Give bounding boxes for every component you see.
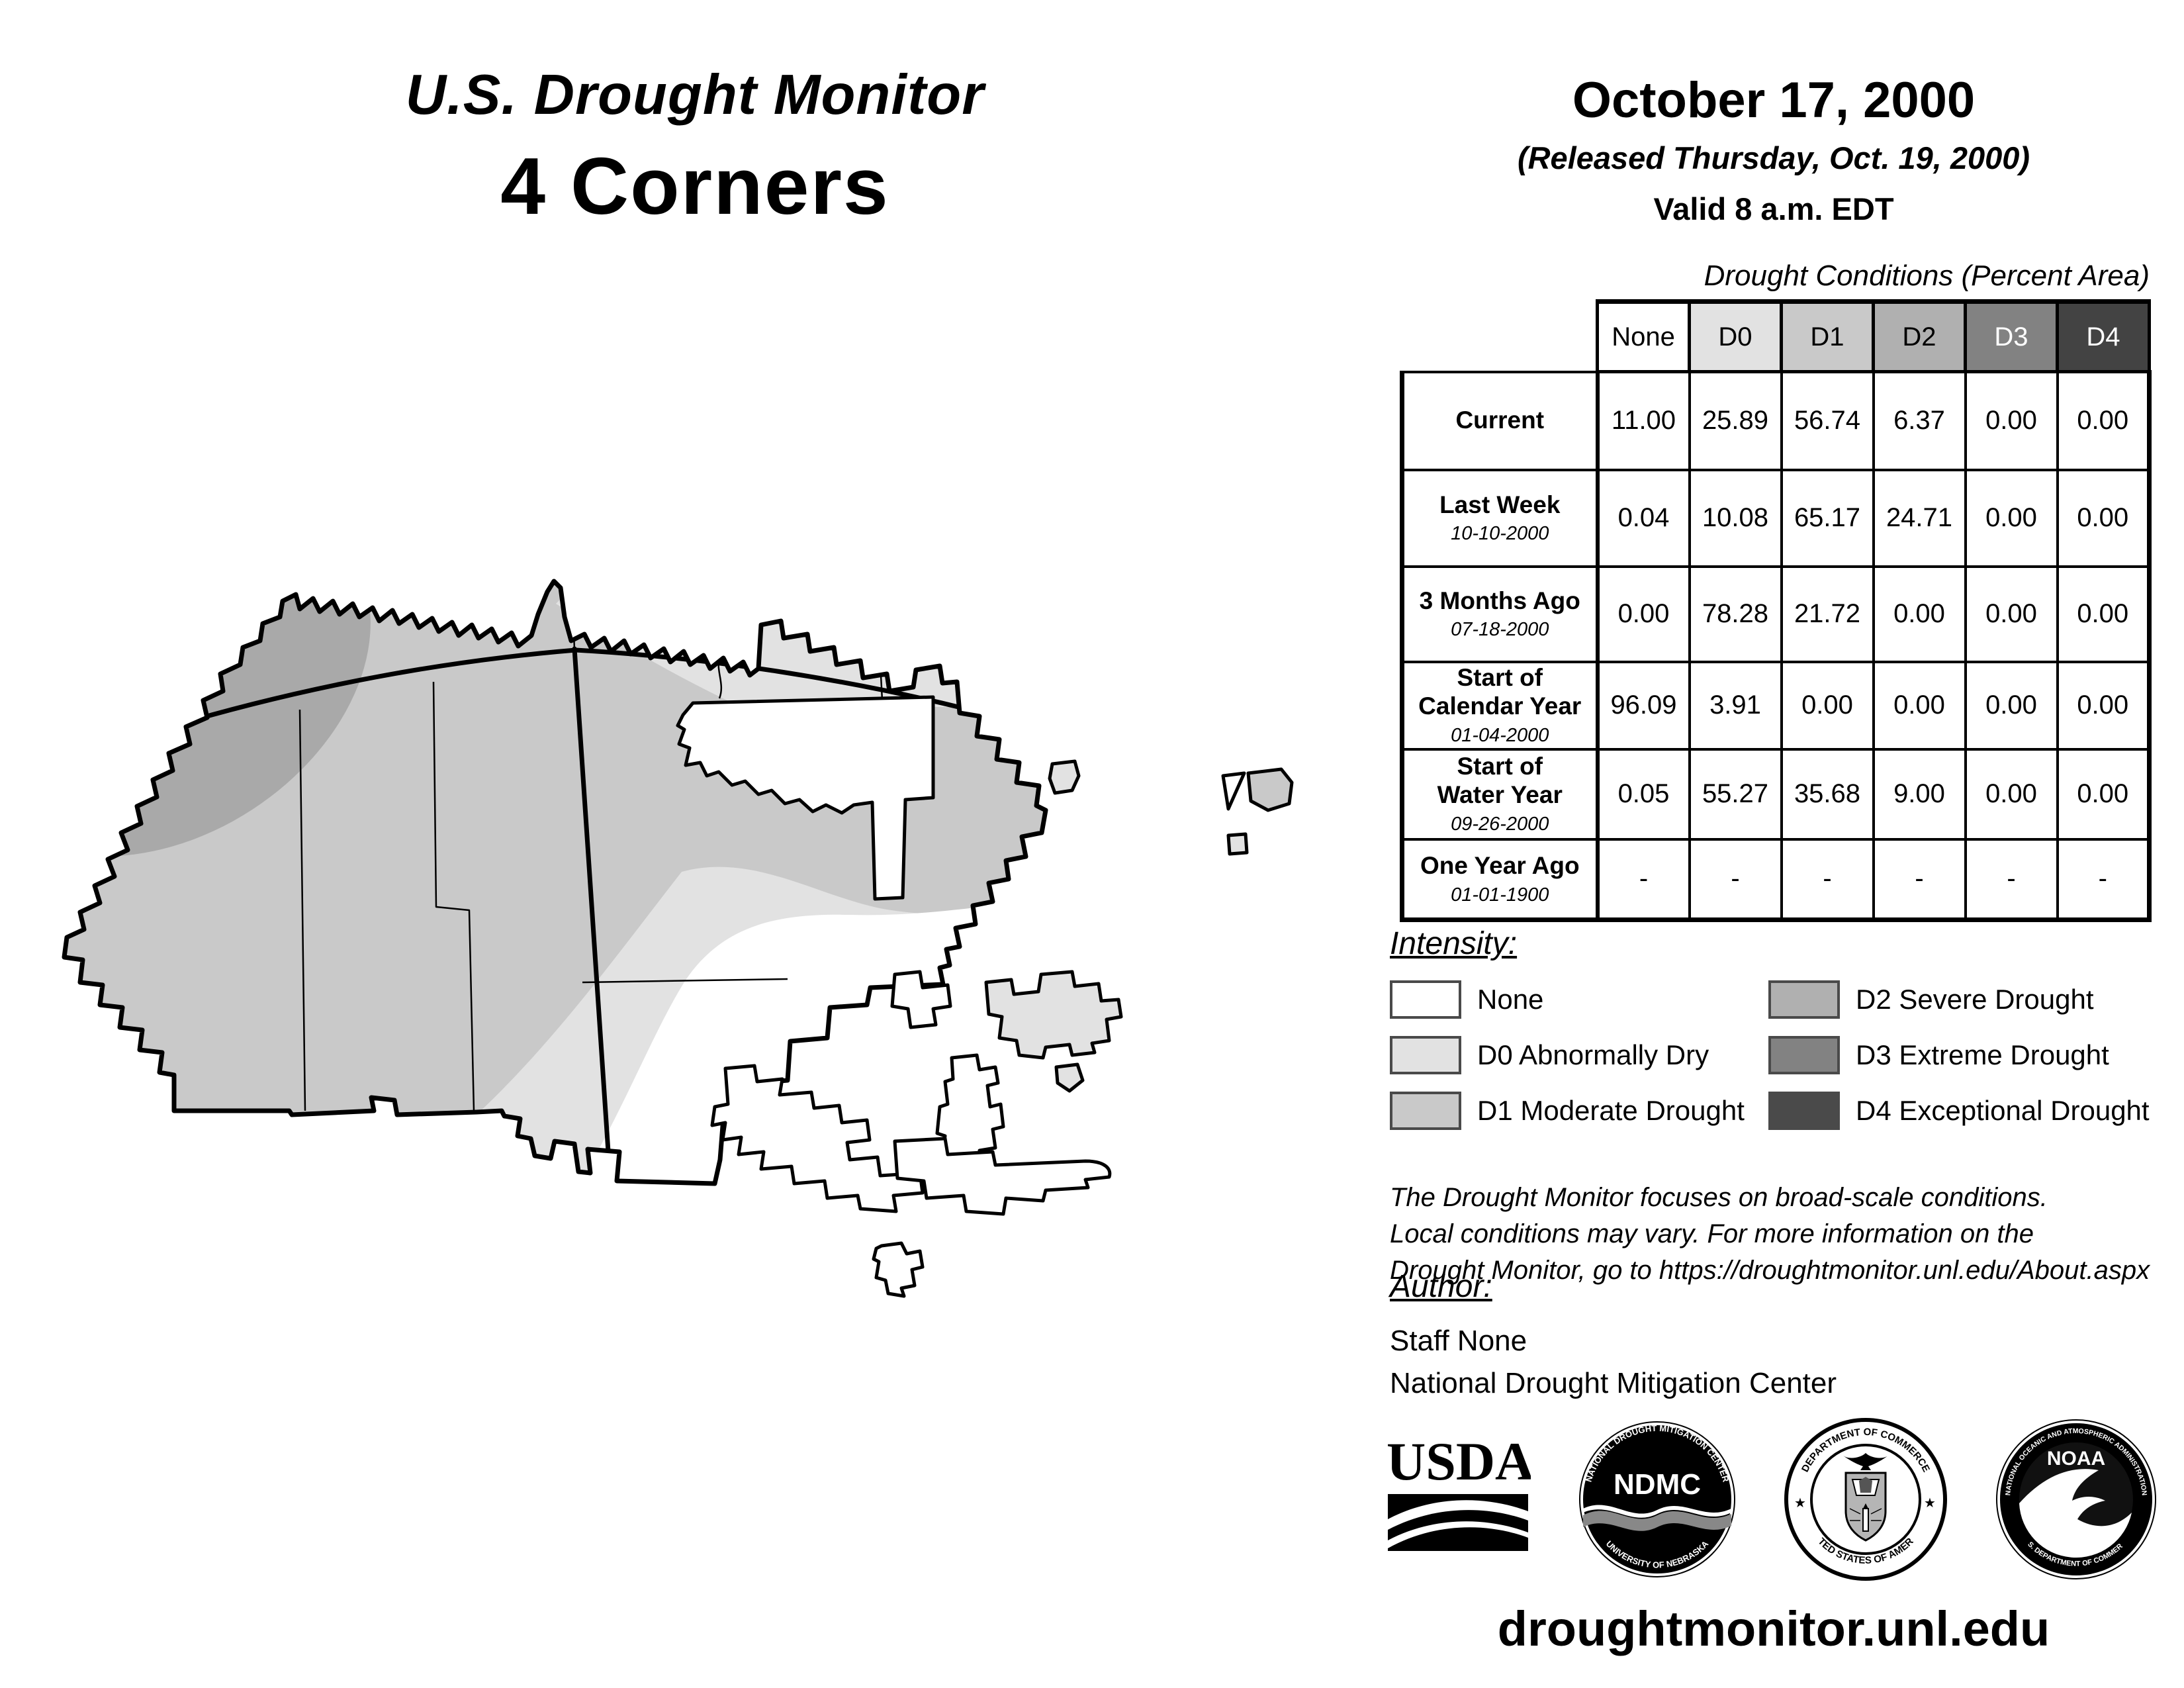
island-white-arm	[895, 1139, 1110, 1214]
value-cell: -	[1782, 839, 1874, 920]
legend-swatch	[1390, 980, 1461, 1019]
value-cell: 11.00	[1598, 372, 1690, 470]
main-region-fills	[53, 577, 1297, 1319]
value-cell: 0.00	[2058, 372, 2150, 470]
column-header-d4: D4	[2058, 302, 2150, 372]
value-cell: 21.72	[1782, 567, 1874, 662]
legend-swatch	[1768, 980, 1840, 1019]
value-cell: 0.00	[1874, 567, 1966, 662]
ndmc-center-text: NDMC	[1614, 1468, 1701, 1501]
table-caption: Drought Conditions (Percent Area)	[1396, 259, 2150, 293]
legend-column-right: D2 Severe DroughtD3 Extreme DroughtD4 Ex…	[1768, 980, 2150, 1130]
legend-swatch	[1768, 1092, 1840, 1130]
row-label: 3 Months Ago07-18-2000	[1402, 567, 1598, 662]
legend-item: None	[1390, 980, 1768, 1019]
column-header-d2: D2	[1874, 302, 1966, 372]
drought-conditions-table: NoneD0D1D2D3D4 Current11.0025.8956.746.3…	[1400, 299, 2152, 922]
row-label: One Year Ago01-01-1900	[1402, 839, 1598, 920]
ndmc-logo: NDMC NATIONAL DROUGHT MITIGATION CENTER …	[1578, 1421, 1736, 1578]
report-date: October 17, 2000	[1396, 71, 2151, 129]
legend-label: D2 Severe Drought	[1840, 984, 2094, 1015]
value-cell: 0.00	[1966, 470, 2058, 567]
value-cell: 9.00	[1874, 749, 1966, 839]
value-cell: 10.08	[1690, 470, 1782, 567]
table-corner-cell	[1402, 302, 1598, 372]
legend-swatch	[1390, 1092, 1461, 1130]
value-cell: 55.27	[1690, 749, 1782, 839]
island-d1-blob	[1248, 769, 1292, 810]
logo-row: USDA NDMC NATIONAL DROUGHT MITIGATION CE…	[1387, 1418, 2158, 1581]
island-white-blob	[874, 1243, 923, 1296]
legend-label: D0 Abnormally Dry	[1461, 1039, 1709, 1071]
value-cell: 0.00	[2058, 567, 2150, 662]
value-cell: 0.00	[1782, 662, 1874, 749]
legend-label: D4 Exceptional Drought	[1840, 1095, 2150, 1127]
island-triangle	[1223, 773, 1244, 809]
value-cell: 0.04	[1598, 470, 1690, 567]
drought-monitor-report: U.S. Drought Monitor 4 Corners October 1…	[0, 0, 2184, 1688]
value-cell: 25.89	[1690, 372, 1782, 470]
value-cell: 56.74	[1782, 372, 1874, 470]
value-cell: 24.71	[1874, 470, 1966, 567]
value-cell: 65.17	[1782, 470, 1874, 567]
value-cell: 3.91	[1690, 662, 1782, 749]
value-cell: 0.00	[2058, 749, 2150, 839]
legend-item: D4 Exceptional Drought	[1768, 1092, 2150, 1130]
value-cell: -	[1598, 839, 1690, 920]
value-cell: 0.00	[1966, 567, 2058, 662]
author-name: Staff None	[1390, 1325, 1837, 1358]
value-cell: 35.68	[1782, 749, 1874, 839]
table-row: 3 Months Ago07-18-20000.0078.2821.720.00…	[1402, 567, 2150, 662]
column-header-d0: D0	[1690, 302, 1782, 372]
table-row: One Year Ago01-01-1900------	[1402, 839, 2150, 920]
value-cell: 0.00	[2058, 470, 2150, 567]
date-block: October 17, 2000 (Released Thursday, Oct…	[1396, 71, 2151, 227]
column-header-none: None	[1598, 302, 1690, 372]
title-block: U.S. Drought Monitor 4 Corners	[165, 63, 1224, 232]
author-org: National Drought Mitigation Center	[1390, 1367, 1837, 1400]
row-label: Start of Water Year09-26-2000	[1402, 749, 1598, 839]
value-cell: 0.00	[1598, 567, 1690, 662]
legend-item: D3 Extreme Drought	[1768, 1036, 2150, 1074]
usda-logo-text: USDA	[1387, 1433, 1531, 1491]
value-cell: 0.00	[2058, 662, 2150, 749]
legend-item: D0 Abnormally Dry	[1390, 1036, 1768, 1074]
website-url[interactable]: droughtmonitor.unl.edu	[1396, 1601, 2151, 1657]
table-row: Current11.0025.8956.746.370.000.00	[1402, 372, 2150, 470]
value-cell: 78.28	[1690, 567, 1782, 662]
svg-text:★: ★	[1794, 1496, 1806, 1511]
value-cell: -	[1874, 839, 1966, 920]
legend-swatch	[1390, 1036, 1461, 1074]
legend-label: D1 Moderate Drought	[1461, 1095, 1745, 1127]
legend-swatch	[1768, 1036, 1840, 1074]
row-label: Last Week10-10-2000	[1402, 470, 1598, 567]
svg-text:★: ★	[1924, 1496, 1936, 1511]
island-d0-pentagon	[1056, 1064, 1083, 1091]
value-cell: 6.37	[1874, 372, 1966, 470]
region-title: 4 Corners	[165, 140, 1224, 232]
value-cell: 0.05	[1598, 749, 1690, 839]
noaa-logo: NOAA NATIONAL OCEANIC AND ATMOSPHERIC AD…	[1995, 1418, 2158, 1581]
value-cell: 96.09	[1598, 662, 1690, 749]
legend-heading: Intensity:	[1390, 925, 2158, 962]
island-d0-large	[986, 972, 1121, 1058]
valid-time: Valid 8 a.m. EDT	[1396, 191, 2151, 227]
column-header-d1: D1	[1782, 302, 1874, 372]
intensity-legend: Intensity: NoneD0 Abnormally DryD1 Moder…	[1390, 925, 2158, 1130]
legend-label: D3 Extreme Drought	[1840, 1039, 2109, 1071]
legend-column-left: NoneD0 Abnormally DryD1 Moderate Drought	[1390, 980, 1768, 1130]
noaa-center-text: NOAA	[2047, 1448, 2105, 1470]
value-cell: -	[1966, 839, 2058, 920]
commerce-seal: ★★ DEPARTMENT OF COMMERCE UNITED STATES …	[1784, 1418, 1947, 1581]
island-d0-small	[1050, 761, 1079, 793]
island-d0-square	[1228, 834, 1247, 854]
table-body: Current11.0025.8956.746.370.000.00Last W…	[1402, 372, 2150, 920]
column-header-d3: D3	[1966, 302, 2058, 372]
value-cell: 0.00	[1874, 662, 1966, 749]
row-label: Start of Calendar Year01-04-2000	[1402, 662, 1598, 749]
value-cell: 0.00	[1966, 662, 2058, 749]
release-date: (Released Thursday, Oct. 19, 2000)	[1396, 140, 2151, 176]
table-row: Start of Calendar Year01-04-200096.093.9…	[1402, 662, 2150, 749]
author-block: Author: Staff None National Drought Miti…	[1390, 1268, 1837, 1400]
usda-logo: USDA	[1387, 1433, 1531, 1566]
value-cell: -	[1690, 839, 1782, 920]
table-row: Last Week10-10-20000.0410.0865.1724.710.…	[1402, 470, 2150, 567]
legend-item: D2 Severe Drought	[1768, 980, 2150, 1019]
table-header: NoneD0D1D2D3D4	[1402, 302, 2150, 372]
page-title: U.S. Drought Monitor	[165, 63, 1224, 128]
author-heading: Author:	[1390, 1268, 1837, 1305]
drought-map	[53, 577, 1297, 1319]
legend-item: D1 Moderate Drought	[1390, 1092, 1768, 1130]
island-white-cluster	[712, 1066, 923, 1211]
value-cell: -	[2058, 839, 2150, 920]
row-label: Current	[1402, 372, 1598, 470]
table-row: Start of Water Year09-26-20000.0555.2735…	[1402, 749, 2150, 839]
value-cell: 0.00	[1966, 749, 2058, 839]
value-cell: 0.00	[1966, 372, 2058, 470]
legend-label: None	[1461, 984, 1543, 1015]
